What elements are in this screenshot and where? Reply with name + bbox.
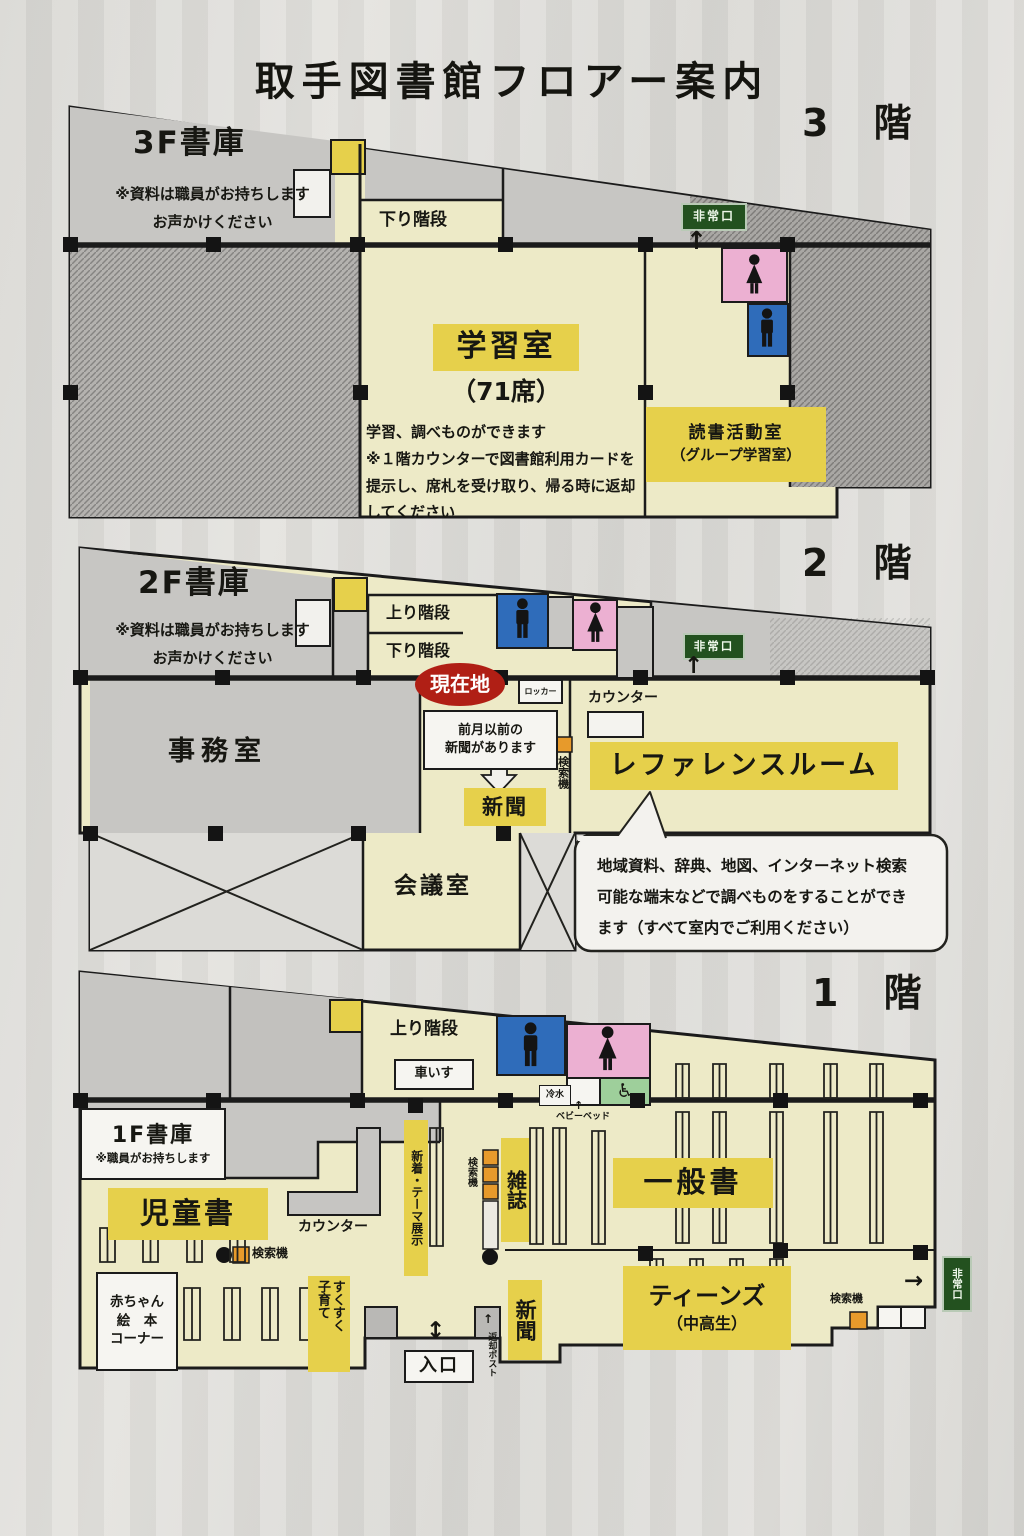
counter-desk-2f bbox=[588, 712, 643, 737]
right-arrow-icon-exit: → bbox=[904, 1268, 923, 1294]
baby-corner-line3: コーナー bbox=[110, 1332, 164, 1348]
page-title: 取手図書館フロアー案内 bbox=[0, 49, 1024, 107]
stack-room-2f-note1: ※資料は職員がお持ちします bbox=[70, 622, 355, 639]
floor2-label: 2 階 bbox=[802, 542, 928, 586]
newspaper-callout-line2: 新聞があります bbox=[445, 742, 536, 757]
children-books-label: 児童書 bbox=[108, 1188, 268, 1240]
general-books-label: 一般書 bbox=[613, 1158, 773, 1208]
up-arrow-icon-2f: ↑ bbox=[684, 653, 703, 679]
stack-room-3f-note1: ※資料は職員がお持ちします bbox=[70, 186, 355, 203]
stack-room-1f-box: 1F書庫 ※職員がお持ちします bbox=[80, 1108, 226, 1180]
search-terminal-right-label: 検索機 bbox=[830, 1293, 863, 1306]
up-arrow-icon-returnpost: ↑ bbox=[483, 1313, 493, 1327]
reading-activity-room-line1: 読書活動室 bbox=[689, 424, 784, 444]
elevator-2f bbox=[334, 578, 367, 611]
search-terminal-2f bbox=[557, 737, 572, 752]
stack-room-2f-label: 2F書庫 bbox=[138, 566, 251, 602]
stack-room-3f-note2: お声かけください bbox=[70, 214, 355, 231]
floor1-label: 1 階 bbox=[812, 972, 938, 1016]
newspaper-callout-line1: 前月以前の bbox=[458, 724, 523, 739]
counter-1f-label: カウンター bbox=[298, 1219, 368, 1235]
locker-label: ロッカー bbox=[518, 679, 563, 704]
teens-line1: ティーンズ bbox=[649, 1283, 766, 1311]
parenting-line1: すくすく bbox=[329, 1280, 344, 1368]
floor3-label: 3 階 bbox=[802, 102, 928, 146]
magazines-label: 雑誌 bbox=[501, 1138, 529, 1242]
teens-label: ティーンズ （中高生） bbox=[623, 1266, 791, 1350]
study-note-line4: してください bbox=[366, 504, 455, 521]
newspaper-callout: 前月以前の 新聞があります bbox=[423, 710, 558, 770]
study-note-line3: 提示し、席札を受け取り、帰る時に返却 bbox=[366, 478, 635, 495]
up-arrow-icon-3f: ↑ bbox=[686, 227, 707, 256]
baby-corner-line1: 赤ちゃん bbox=[110, 1295, 164, 1311]
baby-picturebook-corner: 赤ちゃん 絵 本 コーナー bbox=[96, 1272, 178, 1371]
stairs-down-2f-label: 下り階段 bbox=[386, 642, 450, 660]
stack-room-3f-label: 3F書庫 bbox=[133, 126, 246, 162]
reference-room-label: レファレンスルーム bbox=[590, 742, 898, 790]
stairs-down-3f-label: 下り階段 bbox=[379, 211, 447, 231]
elevator-1f bbox=[330, 1000, 362, 1032]
stack-room-2f-note2: お声かけください bbox=[70, 650, 355, 667]
study-note-line2: ※１階カウンターで図書館利用カードを bbox=[366, 451, 635, 468]
search-terminal-children-label: 検索機 bbox=[252, 1247, 288, 1261]
newspaper-1f-label: 新聞 bbox=[508, 1280, 542, 1360]
office-label: 事務室 bbox=[168, 736, 267, 767]
emergency-exit-sign-1f: 非常口 bbox=[942, 1256, 972, 1312]
study-note-line1: 学習、調べものができます bbox=[366, 424, 546, 441]
reference-balloon-line2: 可能な端末などで調べものをすることができ bbox=[597, 882, 907, 913]
stack-room-1f-label: 1F書庫 bbox=[112, 1123, 194, 1148]
study-room-seats: （71席） bbox=[418, 378, 594, 407]
search-terminal-center-label: 検索機 bbox=[465, 1157, 477, 1205]
you-are-here-marker: 現在地 bbox=[415, 663, 505, 706]
stack-room-1f-note: ※職員がお持ちします bbox=[96, 1152, 211, 1165]
cold-water-label: 冷水 bbox=[539, 1085, 571, 1106]
search-terminal-2f-label: 検索機 bbox=[556, 756, 569, 810]
parenting-line2: 子育て bbox=[314, 1280, 329, 1368]
newspaper-2f-label: 新聞 bbox=[464, 788, 546, 826]
wheelchair-icon: ♿ bbox=[606, 1079, 644, 1104]
floor-guide-poster: 取手図書館フロアー案内 3 階 3F書庫 ※資料は職員がお持ちします お声かけく… bbox=[0, 0, 1024, 1536]
wheelchair-label: 車いす bbox=[394, 1059, 474, 1090]
baby-corner-line2: 絵 本 bbox=[117, 1314, 158, 1330]
counter-2f-label: カウンター bbox=[588, 690, 658, 706]
stairs-up-2f-label: 上り階段 bbox=[386, 604, 450, 622]
meeting-room-label: 会議室 bbox=[394, 873, 472, 899]
reading-activity-room-label: 読書活動室 （グループ学習室） bbox=[646, 407, 826, 482]
baby-bed-label: ベビーベッド bbox=[556, 1112, 610, 1122]
baby-bed-box bbox=[567, 1078, 600, 1105]
parenting-corner-label: すくすく 子育て bbox=[308, 1276, 350, 1372]
reference-balloon-line3: ます（すべて室内でご利用ください） bbox=[597, 913, 859, 944]
stairs-up-1f-label: 上り階段 bbox=[390, 1020, 458, 1040]
reading-activity-room-line2: （グループ学習室） bbox=[671, 448, 801, 465]
return-post-label: 返却ポスト bbox=[486, 1332, 496, 1394]
reference-balloon-line1: 地域資料、辞典、地図、インターネット検索 bbox=[597, 851, 907, 882]
study-room-label: 学習室 bbox=[433, 324, 579, 371]
new-theme-display-label: 新着・テーマ展示 bbox=[404, 1120, 428, 1276]
teens-line2: （中高生） bbox=[667, 1315, 747, 1333]
entrance-arrow-icon: ↕ bbox=[426, 1318, 445, 1344]
up-arrow-icon-babybed: ↑ bbox=[574, 1100, 583, 1113]
entrance-label: 入口 bbox=[404, 1350, 474, 1383]
